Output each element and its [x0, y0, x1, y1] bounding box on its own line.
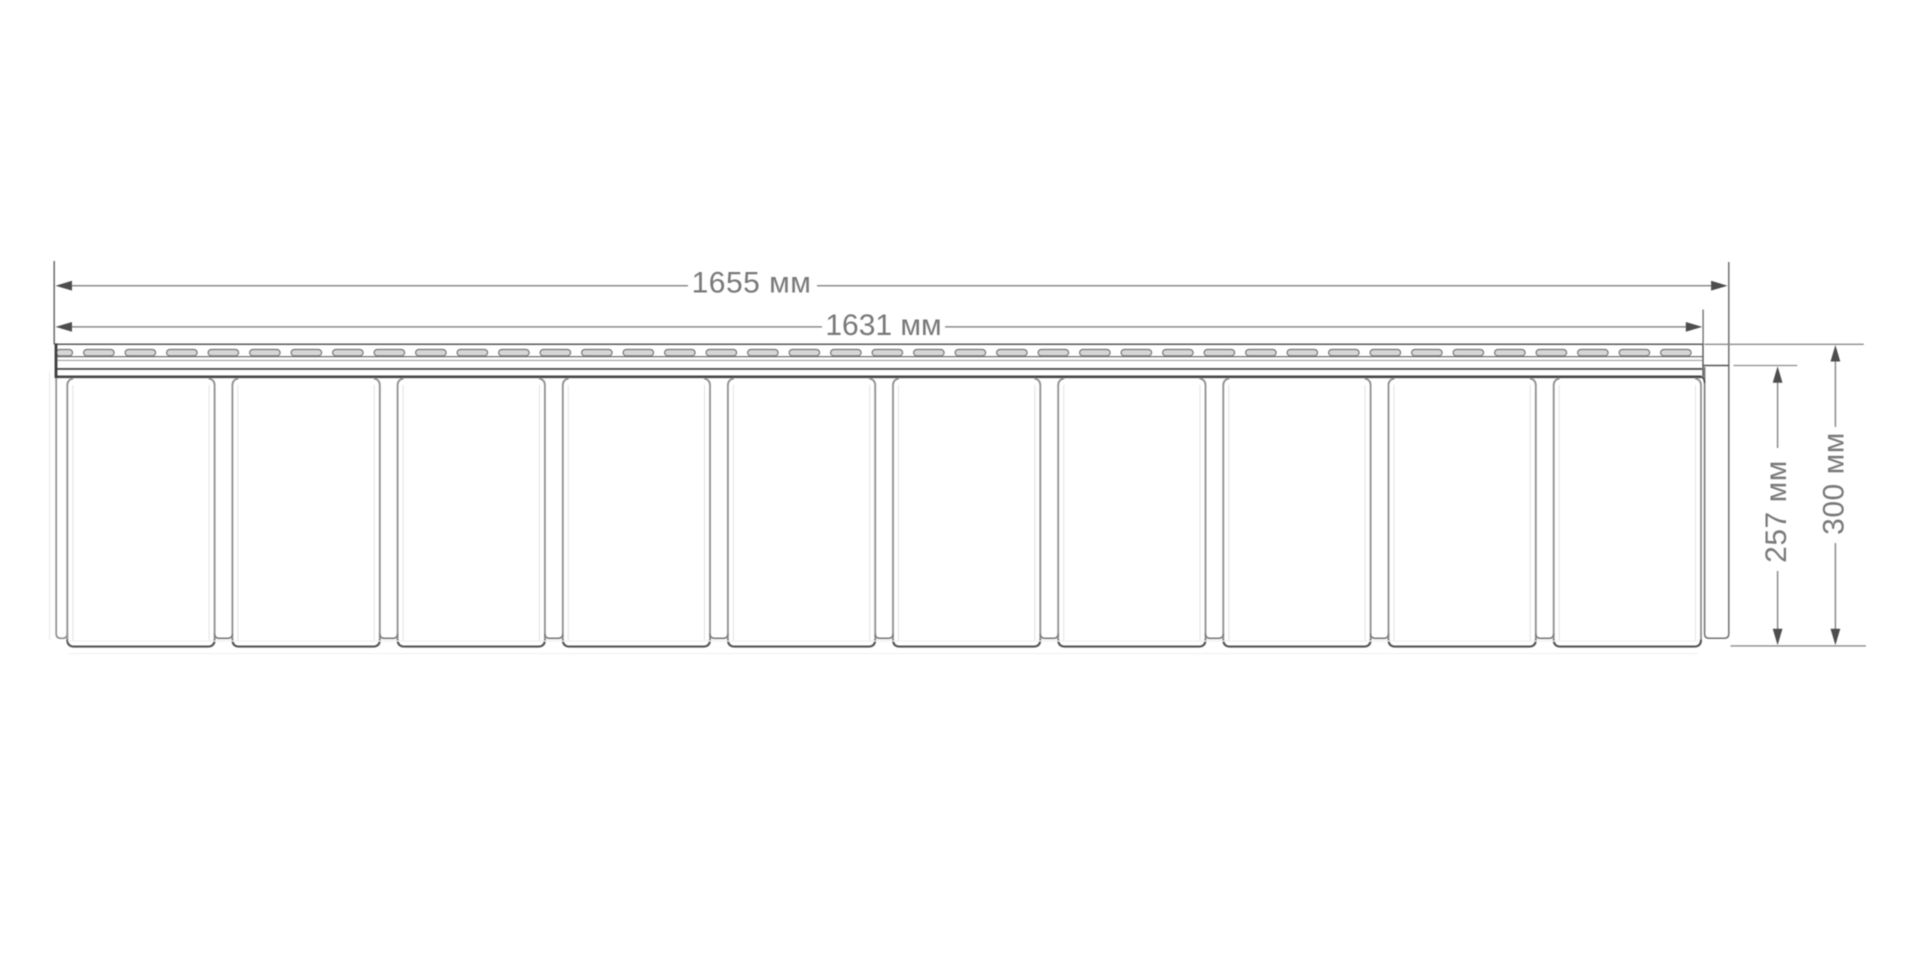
svg-text:1631 мм: 1631 мм	[825, 309, 941, 342]
svg-text:257 мм: 257 мм	[1760, 460, 1793, 563]
svg-text:1655 мм: 1655 мм	[692, 267, 812, 300]
svg-text:300 мм: 300 мм	[1818, 432, 1851, 535]
